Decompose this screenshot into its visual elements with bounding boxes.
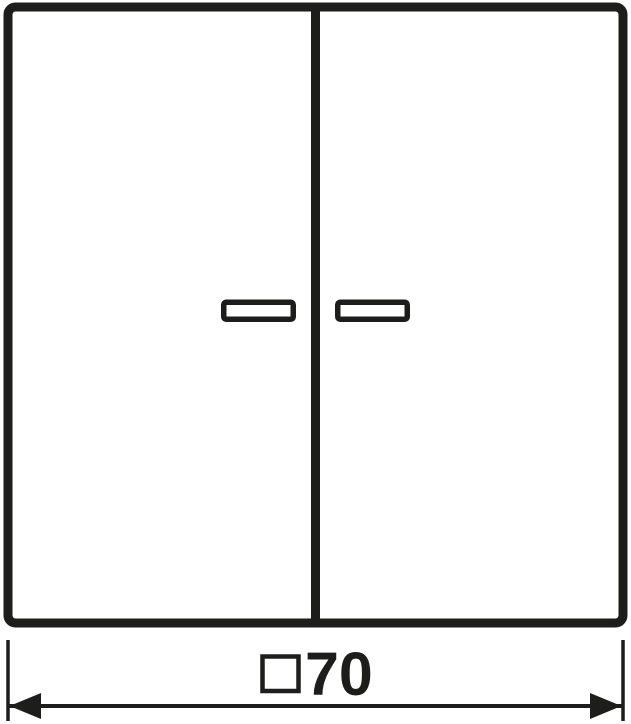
- svg-text:70: 70: [305, 640, 373, 708]
